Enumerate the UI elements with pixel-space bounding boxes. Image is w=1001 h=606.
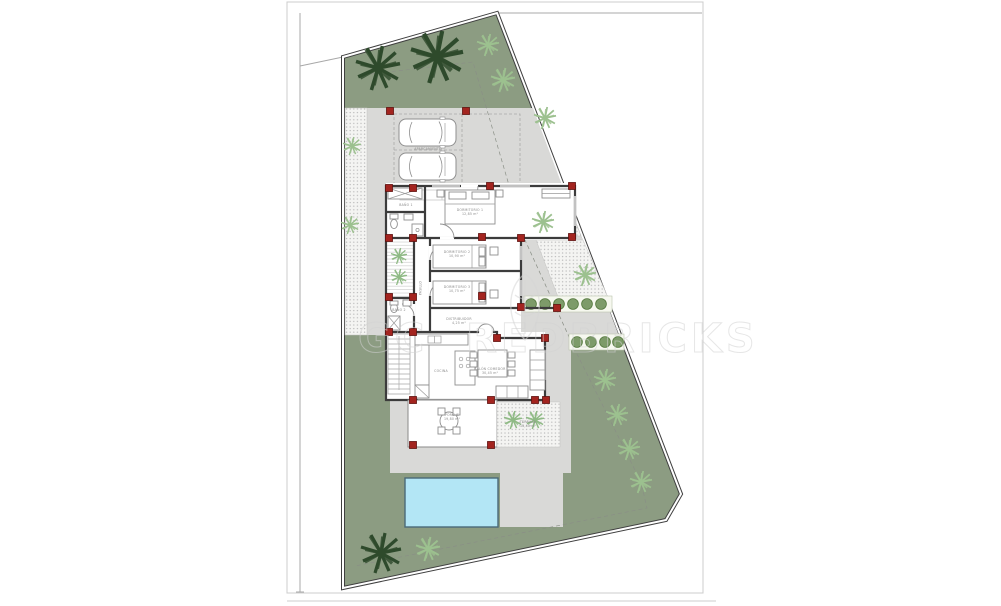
watermark-text-right: REDBRICKS [466,316,759,362]
site-plan-sheet: BAÑO 1 DORMITORIO 112,85 m² DORMITORIO 2… [0,0,1001,606]
svg-text:BAÑO 2: BAÑO 2 [392,307,406,312]
swimming-pool [405,478,498,527]
room-label: APARCAMIENTO [414,147,442,151]
site-plan-drawing: BAÑO 1 DORMITORIO 112,85 m² DORMITORIO 2… [0,0,1001,606]
room-label: COCINA [434,369,448,373]
svg-text:PASILLO: PASILLO [419,281,423,295]
room-label: PASILLO [419,281,423,295]
watermark-text-left: GC [358,316,428,362]
svg-text:PORCHE19,80 m²: PORCHE19,80 m² [444,413,461,421]
svg-text:APARCAMIENTO: APARCAMIENTO [414,147,442,151]
svg-text:TERRAZA15,40 m²: TERRAZA15,40 m² [519,420,537,428]
svg-text:BAÑO 1: BAÑO 1 [399,202,413,207]
room-label: BAÑO 1 [399,202,413,207]
car-top-view-1 [399,117,456,148]
svg-text:COCINA: COCINA [434,369,448,373]
car-top-view-2 [399,151,456,182]
room-label: BAÑO 2 [392,307,406,312]
pergola-porch [408,400,497,447]
